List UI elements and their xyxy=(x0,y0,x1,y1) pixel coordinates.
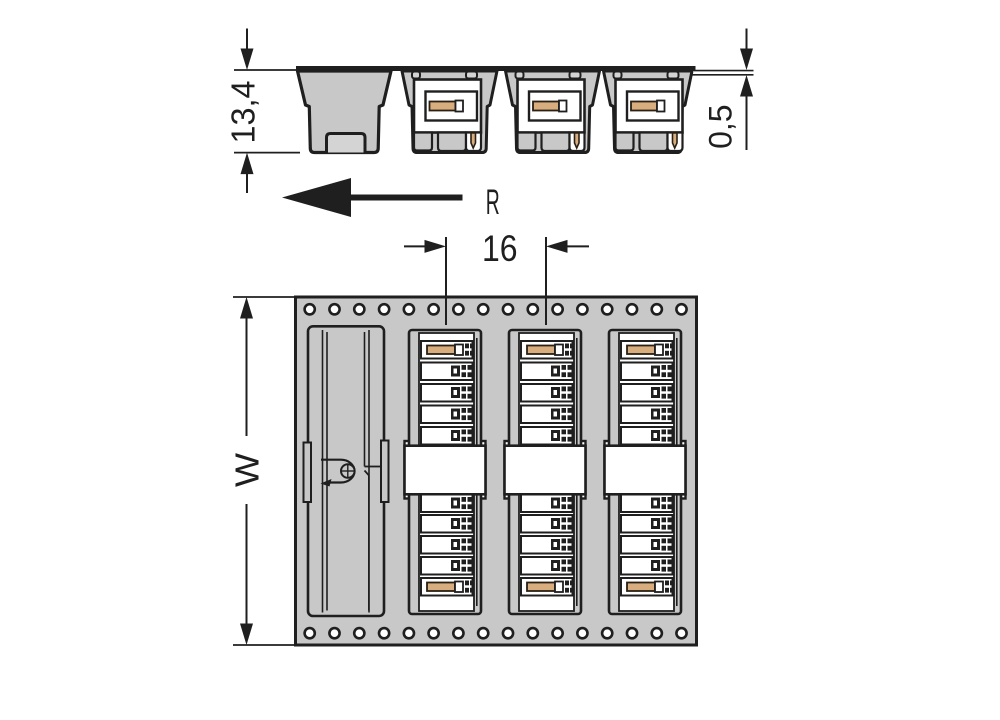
svg-text:R: R xyxy=(486,183,500,222)
svg-text:13,4: 13,4 xyxy=(225,81,262,144)
svg-text:W: W xyxy=(228,452,265,487)
svg-text:16: 16 xyxy=(482,228,518,269)
svg-text:0,5: 0,5 xyxy=(703,104,739,149)
